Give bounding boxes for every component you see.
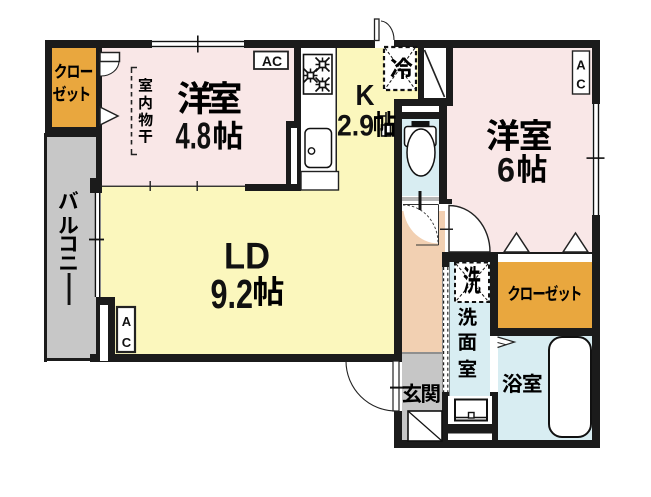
- svg-text:A: A: [576, 58, 586, 73]
- svg-text:4.8: 4.8: [176, 115, 212, 156]
- svg-text:K: K: [356, 80, 375, 112]
- svg-text:AC: AC: [262, 53, 282, 69]
- svg-text:2.9: 2.9: [337, 110, 374, 143]
- svg-text:6: 6: [497, 152, 515, 190]
- svg-text:C: C: [576, 77, 586, 92]
- svg-text:A: A: [122, 314, 132, 329]
- svg-text:C: C: [122, 335, 132, 350]
- svg-text:9.2: 9.2: [211, 271, 254, 317]
